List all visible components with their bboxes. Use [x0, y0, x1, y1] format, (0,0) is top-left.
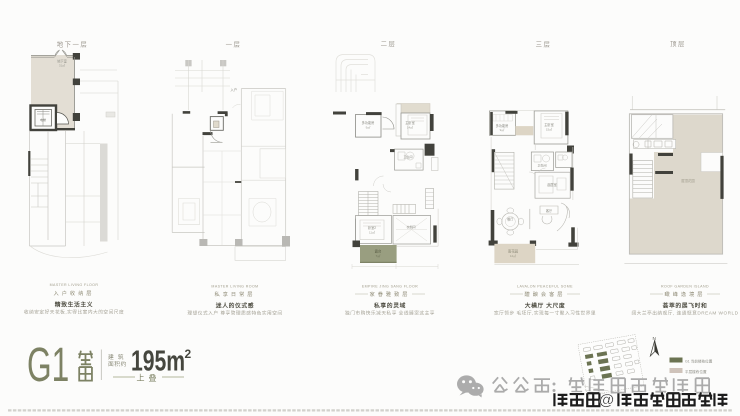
svg-text:收纳安定好天花板,实得比室内大的空间尺度: 收纳安定好天花板,实得比室内大的空间尺度 [24, 309, 124, 316]
svg-text:平层楼栋位置: 平层楼栋位置 [685, 369, 707, 374]
svg-text:入户收纳层: 入户收纳层 [54, 289, 95, 297]
svg-text:MASTER LIVING FLOOR: MASTER LIVING FLOOR [50, 283, 99, 287]
svg-text:荟萃的展飞时和: 荟萃的展飞时和 [662, 302, 708, 310]
svg-text:露台: 露台 [375, 249, 382, 254]
svg-text:宽厅领步 毛坯厅,实现每一寸聚入习性世界里: 宽厅领步 毛坯厅,实现每一寸聚入习性世界里 [494, 310, 596, 317]
svg-text:大横厅 大尺度: 大横厅 大尺度 [525, 302, 566, 310]
svg-text:起居室: 起居室 [547, 182, 557, 187]
svg-text:二层: 二层 [381, 40, 397, 48]
svg-text:南花园: 南花园 [508, 249, 519, 254]
svg-text:独门市购快乐减天私享 全线臻案这主享: 独门市购快乐减天私享 全线臻案这主享 [345, 310, 435, 317]
svg-text:G1: G1 [27, 337, 69, 391]
svg-text:精致生活主义: 精致生活主义 [55, 301, 93, 309]
svg-text:私享的灵域: 私享的灵域 [373, 302, 406, 310]
svg-text:主卧室: 主卧室 [405, 120, 415, 125]
svg-text:私享日常层: 私享日常层 [215, 290, 256, 298]
svg-text:MASTER LIVING ROOM: MASTER LIVING ROOM [211, 285, 258, 289]
svg-text:卫生间: 卫生间 [403, 154, 412, 159]
svg-text:@: @ [599, 392, 614, 409]
svg-text:LAVALON PEACEFUL SOME: LAVALON PEACEFUL SOME [517, 285, 573, 289]
svg-text:瞰峰逸境层: 瞰峰逸境层 [665, 290, 706, 298]
svg-text:多功能房: 多功能房 [362, 120, 375, 125]
svg-text:迷人的仪式感: 迷人的仪式感 [215, 302, 254, 310]
svg-text:阔大兰亭出纳观厅, 连通惬意DREAM WORLD: 阔大兰亭出纳观厅, 连通惬意DREAM WORLD [631, 310, 738, 317]
svg-text:N: N [653, 336, 656, 341]
svg-text:入户: 入户 [230, 87, 237, 92]
svg-text:面积约: 面积约 [108, 360, 127, 368]
svg-text:上叠: 上叠 [137, 374, 161, 383]
svg-text:卧室2: 卧室2 [368, 225, 376, 230]
svg-text:14㎡: 14㎡ [407, 125, 413, 130]
svg-text:2: 2 [185, 347, 192, 361]
svg-text:地下一层: 地下一层 [57, 40, 89, 49]
svg-text:7㎡: 7㎡ [376, 253, 381, 258]
svg-text:15㎡: 15㎡ [546, 127, 552, 132]
svg-text:屋顶花园: 屋顶花园 [681, 178, 695, 183]
svg-text:卫生间: 卫生间 [537, 163, 546, 168]
svg-text:醴酿会客层: 醴酿会客层 [525, 290, 566, 298]
svg-text:主卧室: 主卧室 [544, 122, 554, 127]
svg-text:衣帽间: 衣帽间 [406, 224, 415, 229]
svg-text:电梯: 电梯 [40, 117, 46, 122]
svg-text:11㎡: 11㎡ [369, 230, 375, 235]
svg-text:客厅: 客厅 [546, 208, 553, 213]
svg-text:顶层: 顶层 [670, 40, 686, 48]
svg-text:家眷雅致层: 家眷雅致层 [370, 290, 411, 298]
svg-text:EMPIRE JING SANG FLOOR: EMPIRE JING SANG FLOOR [362, 285, 418, 289]
svg-text:一层: 一层 [226, 41, 242, 49]
svg-text:31㎡: 31㎡ [59, 63, 65, 68]
svg-text:9㎡: 9㎡ [366, 125, 371, 130]
svg-text:12㎡: 12㎡ [510, 253, 516, 258]
svg-text:建筑: 建筑 [108, 353, 128, 361]
svg-text:三层: 三层 [536, 41, 552, 49]
svg-text:餐厅: 餐厅 [507, 217, 514, 222]
svg-text:G1 当前楼栋位置: G1 当前楼栋位置 [685, 359, 713, 364]
svg-text:ROOF GARDEN ISLAND: ROOF GARDEN ISLAND [661, 285, 709, 289]
svg-text:理想仪式入户 尊享管理质感特色实用空间: 理想仪式入户 尊享管理质感特色实用空间 [187, 310, 282, 317]
svg-text:9㎡: 9㎡ [500, 127, 505, 132]
